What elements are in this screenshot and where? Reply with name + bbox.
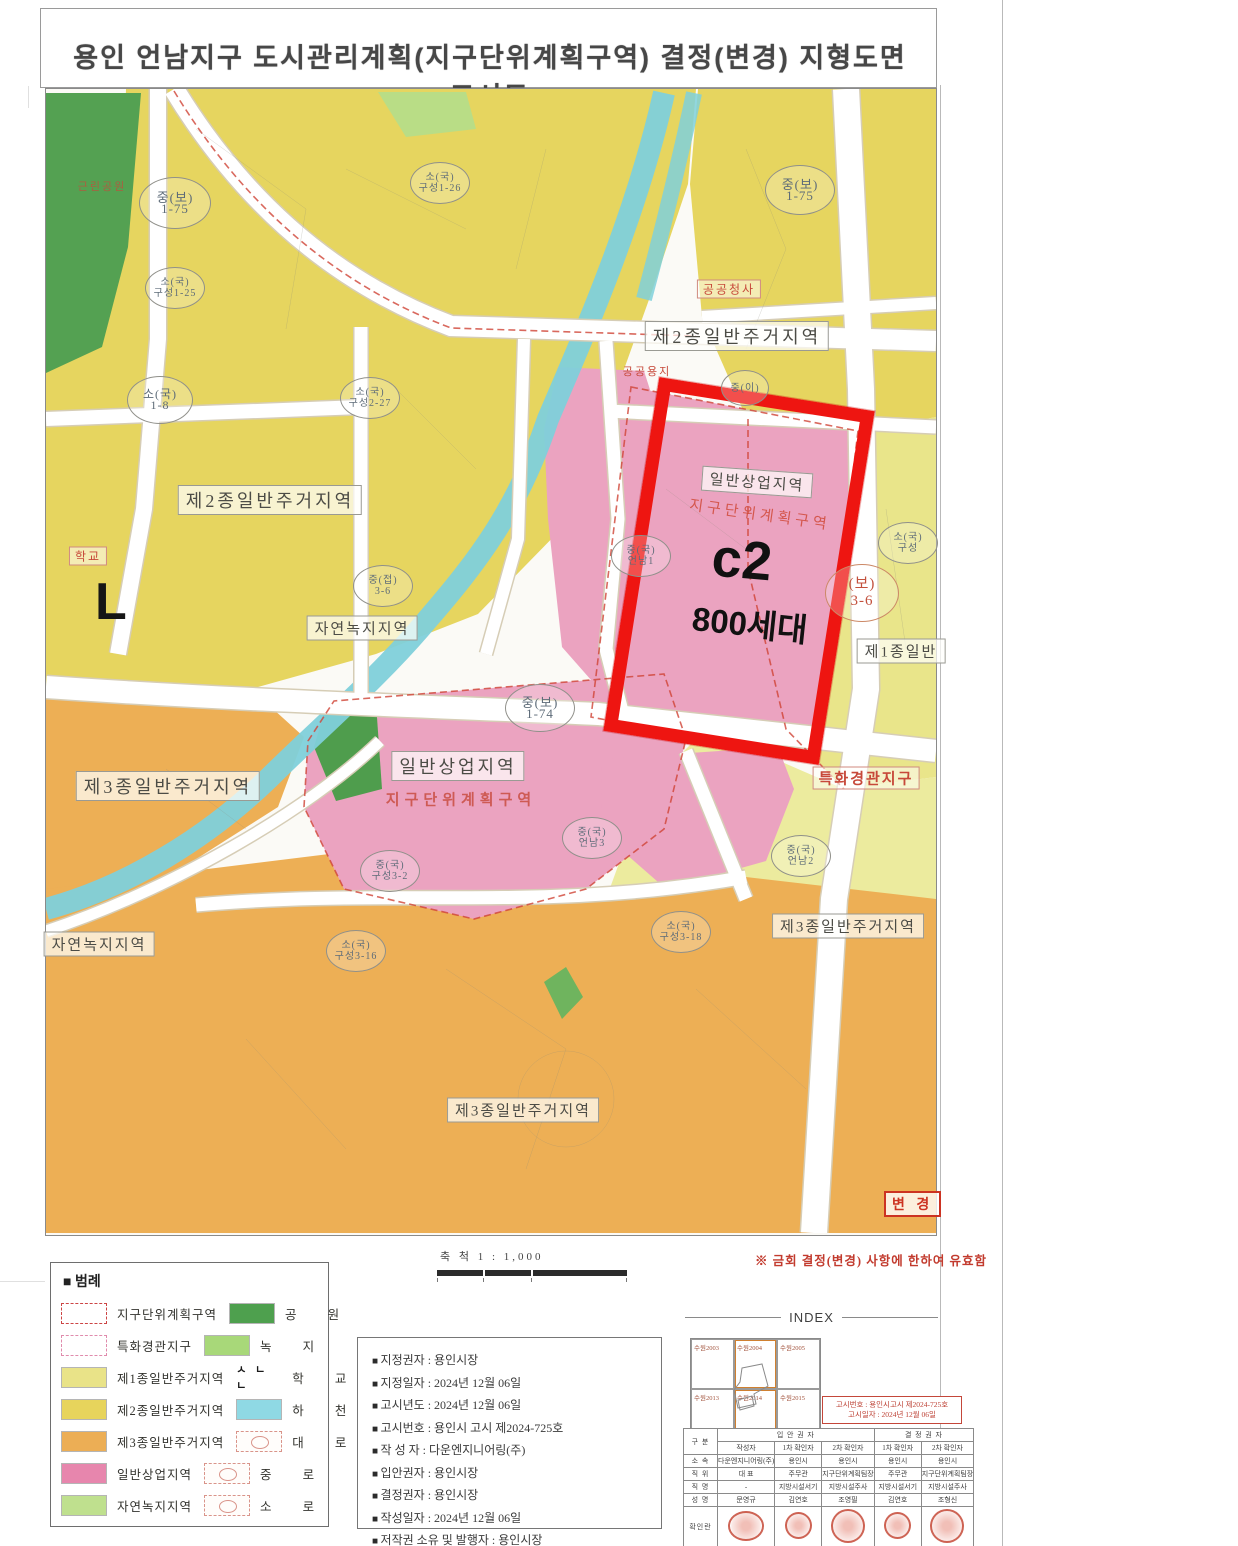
page-edge-line (1002, 0, 1003, 1546)
info-line: 작성일자 : 2024년 12월 06일 (372, 1508, 661, 1531)
stamp-cell (775, 1507, 822, 1546)
residential2-swatch (61, 1399, 107, 1420)
legend-row: 제2종일반주거지역 하 천 (61, 1397, 321, 1421)
public-office-label: 공공청사 (697, 280, 761, 299)
road-marker: 소(국)구성 (878, 522, 938, 564)
stamp-icon (728, 1511, 764, 1541)
gazette-date: 고시일자 : 2024년 12월 06일 (848, 1410, 936, 1420)
table-cell: 주무관 (874, 1468, 921, 1481)
road-marker: 소(국)구성3-16 (326, 930, 386, 972)
table-cell: 지방시설주사 (822, 1481, 875, 1494)
table-cell: 용인시 (822, 1455, 875, 1468)
row-label: 소 속 (684, 1455, 718, 1468)
info-line: 입안권자 : 용인시장 (372, 1463, 661, 1486)
index-cell: 수원2005 (777, 1339, 820, 1389)
major-road-swatch (236, 1431, 282, 1452)
public-land-label: 공공용지 (623, 363, 671, 379)
legend-box: ■ 범례 지구단위계획구역 공 원 특화경관지구 녹 지 제1종일반주거지역 ㅅ… (50, 1262, 329, 1527)
info-line: 작 성 자 : 다운엔지니어링(주) (372, 1440, 661, 1463)
highlight-block-code: c2 (709, 526, 774, 593)
table-cell: 주무관 (775, 1468, 822, 1481)
info-line: 지정일자 : 2024년 12월 06일 (372, 1373, 661, 1396)
table-cell: 조영필 (822, 1494, 875, 1507)
river-swatch (236, 1399, 282, 1420)
role-header: 2차 확인자 (822, 1442, 875, 1455)
district-boundary-swatch (61, 1303, 107, 1324)
info-line: 저작권 소유 및 발행자 : 용인시장 (372, 1530, 661, 1546)
zone-label: 자연녹지지역 (307, 616, 418, 641)
table-cell: 용인시 (775, 1455, 822, 1468)
legend-title: ■ 범례 (63, 1271, 101, 1291)
road-marker: 소(국)1-8 (127, 376, 193, 424)
table-cell: 지방시설서기 (874, 1481, 921, 1494)
table-cell: - (718, 1481, 775, 1494)
legend-row: 제3종일반주거지역 대 로 (61, 1429, 321, 1453)
road-marker: 중(보)1-75 (765, 165, 835, 215)
row-label: 확인란 (684, 1507, 718, 1546)
minor-road-swatch (204, 1495, 250, 1516)
table-cell: 용인시 (921, 1455, 974, 1468)
zone-label: 제2종일반주거지역 (178, 485, 362, 515)
road-marker: 소(국)구성2-27 (340, 377, 400, 419)
index-title-row: INDEX (685, 1310, 938, 1325)
commercial-swatch (61, 1463, 107, 1484)
role-header: 1차 확인자 (775, 1442, 822, 1455)
table-cell: 조형신 (921, 1494, 974, 1507)
legend-row: 특화경관지구 녹 지 (61, 1333, 321, 1357)
stamp-icon (884, 1512, 911, 1539)
scanned-notice-page: 용인 언남지구 도시관리계획(지구단위계획구역) 결정(변경) 지형도면고시도 (0, 0, 1238, 1546)
road-marker: 중(국)언남1 (611, 535, 671, 577)
table-cell: 김연호 (775, 1494, 822, 1507)
group-header: 결 정 권 자 (874, 1429, 974, 1442)
table-cell: 지방시설서기 (775, 1481, 822, 1494)
info-line: 고시번호 : 용인시 고시 제2024-725호 (372, 1418, 661, 1441)
school-symbol-icon: L (95, 578, 127, 626)
stamp-icon (785, 1512, 812, 1539)
stamp-icon (831, 1509, 865, 1543)
table-cell: 지구단위계획팀장 (921, 1468, 974, 1481)
road-marker: 중(국)구성3-2 (360, 850, 420, 892)
fold-mark (0, 1281, 45, 1282)
scale-bar (437, 1270, 627, 1276)
stamp-cell (822, 1507, 875, 1546)
park-swatch (229, 1303, 275, 1324)
legend-row: 지구단위계획구역 공 원 (61, 1301, 321, 1325)
district-boundary-label: 지구단위계획구역 (386, 789, 536, 810)
legend-row: 자연녹지지역 소 로 (61, 1493, 321, 1517)
nature-green-swatch (61, 1495, 107, 1516)
validity-note: ※ 금회 결정(변경) 사항에 한하여 유효함 (755, 1250, 987, 1269)
row-label: 직 명 (684, 1481, 718, 1494)
approval-table: 구 분 입 안 권 자 결 정 권 자 작성자 1차 확인자 2차 확인자 1차… (683, 1428, 974, 1546)
road-marker: 중(접)3-6 (353, 565, 413, 607)
row-label: 직 위 (684, 1468, 718, 1481)
legend-row: 일반상업지역 중 로 (61, 1461, 321, 1485)
greenery-swatch (204, 1335, 250, 1356)
index-location-sketch (728, 1360, 774, 1420)
table-cell: 대 표 (718, 1468, 775, 1481)
road-marker: 소(국)구성1-26 (410, 162, 470, 204)
role-header: 작성자 (718, 1442, 775, 1455)
info-line: 결정권자 : 용인시장 (372, 1485, 661, 1508)
road-marker: 중(국)언남2 (771, 835, 831, 877)
stamp-icon (930, 1509, 964, 1543)
medium-road-swatch (204, 1463, 250, 1484)
info-line: 지정권자 : 용인시장 (372, 1350, 661, 1373)
fold-mark (28, 86, 29, 108)
table-cell: 문영규 (718, 1494, 775, 1507)
stamp-cell (921, 1507, 974, 1546)
legend-row: 제1종일반주거지역 ㅅ ㄴ ㄴ 학 교 (61, 1365, 321, 1389)
role-header: 2차 확인자 (921, 1442, 974, 1455)
stamp-cell (718, 1507, 775, 1546)
zone-label: 제3종일반주거지역 (447, 1098, 599, 1123)
zone-label: 일반상업지역 (391, 751, 524, 781)
table-cell: 용인시 (874, 1455, 921, 1468)
park-label: 근린공원 (78, 178, 126, 194)
road-marker: 중(보)1-74 (505, 684, 575, 732)
table-cell: 지구단위계획팀장 (822, 1468, 875, 1481)
info-line: 고시년도 : 2024년 12월 06일 (372, 1395, 661, 1418)
table-cell: 지방시설주사 (921, 1481, 974, 1494)
road-marker: 중(국)언남3 (562, 817, 622, 859)
notice-info-box: 지정권자 : 용인시장 지정일자 : 2024년 12월 06일 고시년도 : … (357, 1337, 662, 1529)
zone-label: 제3종일반주거지역 (76, 771, 260, 801)
scale-label: 축 척 1 : 1,000 (440, 1248, 544, 1264)
table-cell: 김연호 (874, 1494, 921, 1507)
residential1-swatch (61, 1367, 107, 1388)
gazette-number: 고시번호 : 용인시고시 제2024-725호 (836, 1400, 948, 1410)
group-header: 입 안 권 자 (718, 1429, 875, 1442)
residential3-swatch (61, 1431, 107, 1452)
scenic-district-swatch (61, 1335, 107, 1356)
role-header: 1차 확인자 (874, 1442, 921, 1455)
zone-label: 제1종일반 (857, 639, 946, 664)
index-title: INDEX (789, 1310, 834, 1325)
zone-label: 제3종일반주거지역 (772, 914, 924, 939)
road-marker: 중(이) (721, 370, 769, 406)
school-swatch-icon: ㅅ ㄴ ㄴ (236, 1367, 282, 1388)
road-marker: (보)3-6 (825, 564, 899, 622)
road-marker: 중(보)1-75 (139, 177, 211, 229)
stamp-cell (874, 1507, 921, 1546)
zone-label: 자연녹지지역 (44, 932, 155, 957)
gazette-number-box: 고시번호 : 용인시고시 제2024-725호 고시일자 : 2024년 12월… (822, 1396, 962, 1424)
row-label: 성 명 (684, 1494, 718, 1507)
zone-label: 제2종일반주거지역 (645, 321, 829, 351)
change-stamp: 변 경 (884, 1191, 941, 1217)
school-label: 학교 (69, 547, 107, 566)
road-marker: 소(국)구성1-25 (145, 267, 205, 309)
table-cell: 다운엔지니어링(주) (718, 1455, 775, 1468)
scenic-district-label: 특화경관지구 (813, 767, 920, 790)
page-edge-line (940, 85, 941, 1546)
road-marker: 소(국)구성3-18 (651, 911, 711, 953)
table-corner: 구 분 (684, 1429, 718, 1455)
